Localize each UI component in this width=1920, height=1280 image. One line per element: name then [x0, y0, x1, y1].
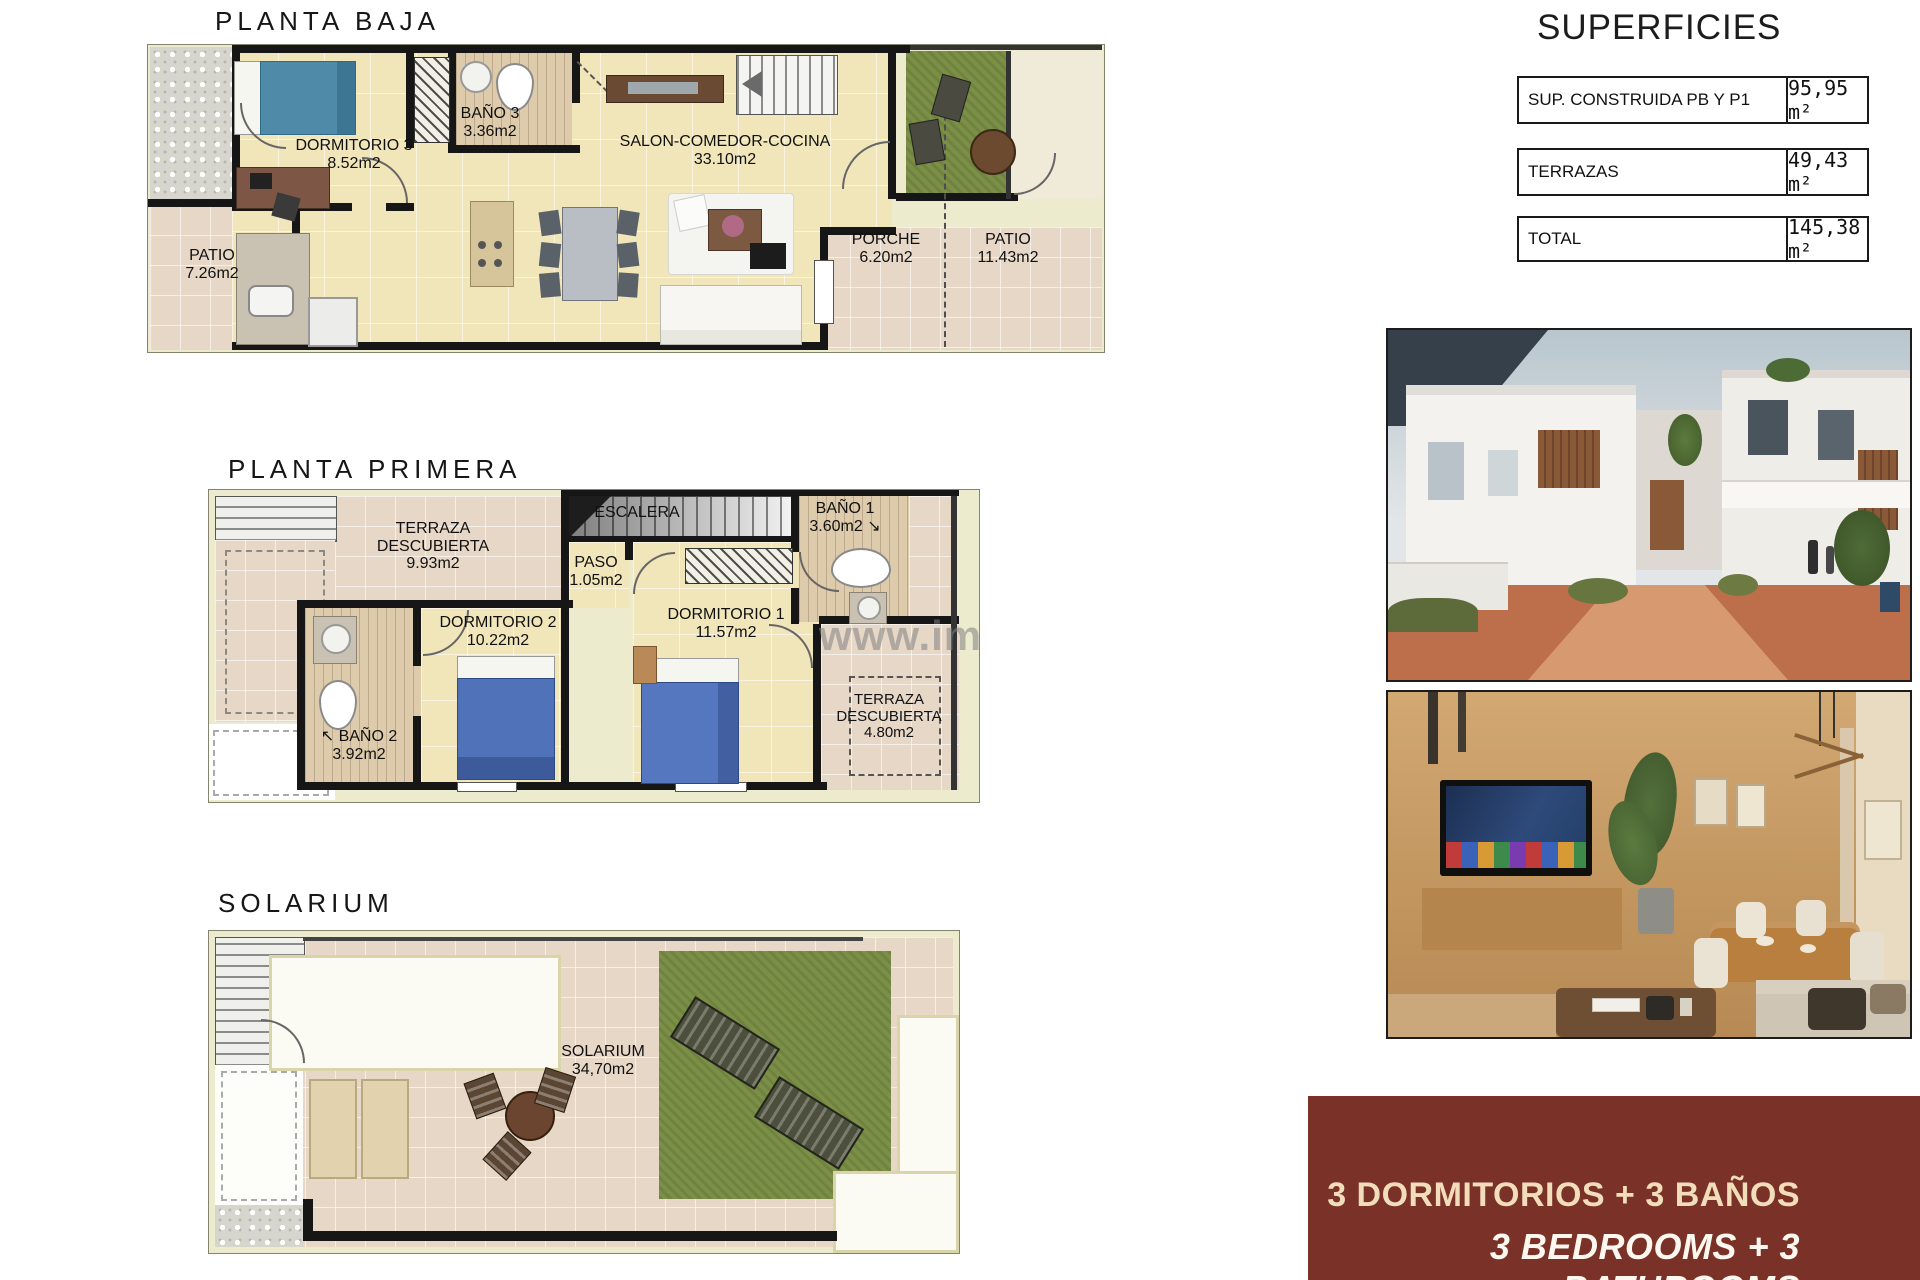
lounger-mat-icon — [361, 1079, 409, 1179]
garden-table-icon — [970, 129, 1016, 175]
burner-icon — [494, 259, 502, 267]
room-name: DORMITORIO 3 — [295, 137, 412, 154]
window — [1818, 410, 1854, 460]
candle — [1680, 998, 1692, 1016]
solarium-plan: SOLARIUM 34,70m2 — [208, 930, 960, 1254]
pouf-icon — [673, 194, 711, 232]
window — [1488, 450, 1518, 496]
room-area: 7.26m2 — [185, 265, 238, 282]
wall — [896, 193, 1018, 201]
chair-icon — [539, 272, 561, 298]
wall — [406, 53, 414, 148]
interior-render-photo — [1386, 690, 1912, 1039]
row-label: TOTAL — [1519, 218, 1788, 260]
wall — [569, 536, 795, 542]
room-area: 33.10m2 — [694, 151, 756, 168]
planta-primera-plan: TERRAZA DESCUBIERTA 9.93m2 ESCALERA PASO… — [208, 489, 980, 803]
room-label-patio-right: PATIO 11.43m2 — [960, 231, 1056, 266]
room-name: BAÑO 1 — [816, 500, 875, 517]
room-area: 3.92m2 — [332, 746, 385, 763]
window — [814, 260, 834, 324]
room-label-patio-left: PATIO 7.26m2 — [166, 247, 258, 282]
exterior-render-photo — [1386, 328, 1912, 682]
lounger-mat-icon — [309, 1079, 357, 1179]
wall — [297, 600, 305, 790]
bush — [1718, 574, 1758, 596]
bowl — [1800, 944, 1816, 953]
room-area: 3.36m2 — [463, 123, 516, 140]
chair-icon — [617, 242, 640, 268]
vase — [1646, 996, 1674, 1020]
coffee-table — [1556, 988, 1716, 1037]
boundary-dashed-line — [944, 95, 946, 347]
room-label-escalera: ESCALERA — [587, 504, 687, 522]
direction-arrow-icon: ↘ — [867, 518, 880, 535]
void-dashed-outline — [221, 1071, 297, 1201]
room-area: 8.52m2 — [327, 155, 380, 172]
sideboard — [1422, 888, 1622, 950]
room-area: 11.43m2 — [977, 249, 1038, 266]
wall — [303, 1199, 313, 1241]
banner-line1: 3 DORMITORIOS + 3 BAÑOS — [1308, 1176, 1800, 1215]
room-name: BAÑO 3 — [461, 105, 520, 122]
room-label-terraza2: TERRAZA DESCUBIERTA 4.80m2 — [833, 692, 945, 742]
room-label-bano1: BAÑO 1 3.60m2 ↘ — [797, 500, 893, 535]
dining-chair — [1796, 900, 1826, 936]
planta-baja-title: PLANTA BAJA — [215, 6, 440, 37]
direction-arrow-icon: ↖ — [321, 728, 334, 745]
wall — [448, 145, 580, 153]
room-label-porche: PORCHE 6.20m2 — [844, 231, 928, 266]
bed-icon — [641, 682, 739, 784]
sink-icon — [321, 624, 351, 654]
room-area: 1.05m2 — [569, 572, 622, 589]
room-name: TERRAZA DESCUBIERTA — [377, 520, 489, 555]
wall — [297, 600, 573, 608]
bed-icon — [457, 678, 555, 780]
room-label-terraza1: TERRAZA DESCUBIERTA 9.93m2 — [367, 520, 499, 573]
floor — [1388, 994, 1556, 1037]
burner-icon — [478, 259, 486, 267]
brochure-page: PLANTA BAJA PLANTA PRIMERA SOLARIUM — [0, 0, 1920, 1280]
wall — [303, 937, 863, 941]
room-name: PASO — [574, 554, 617, 571]
plaza-sign — [1880, 582, 1900, 612]
throw-blanket — [1808, 988, 1866, 1030]
planta-baja-plan: DORMITORIO 3 8.52m2 BAÑO 3 3.36m2 SALON-… — [147, 44, 1105, 353]
stairs-icon — [215, 496, 337, 542]
bowl — [1756, 936, 1774, 946]
entry-stone-area — [150, 47, 232, 205]
wall — [413, 716, 421, 786]
room-label-bano3: BAÑO 3 3.36m2 — [444, 105, 536, 140]
flowers-icon — [722, 215, 744, 237]
wall — [910, 45, 1102, 50]
sink-icon — [460, 61, 492, 93]
nightstand-icon — [633, 646, 657, 684]
bush — [1388, 598, 1478, 632]
grass-area — [659, 951, 891, 1199]
bush — [1568, 578, 1628, 604]
window — [1428, 442, 1464, 500]
chair-icon — [539, 242, 561, 268]
room-label-dormitorio2: DORMITORIO 2 10.22m2 — [431, 614, 565, 649]
chair-icon — [538, 210, 561, 237]
superficies-row: TOTAL 145,38 m² — [1517, 216, 1869, 262]
pendant-cord — [1819, 692, 1821, 746]
wall — [232, 45, 910, 53]
window — [1748, 400, 1788, 455]
row-label: SUP. CONSTRUIDA PB Y P1 — [1519, 78, 1788, 122]
tree — [1834, 510, 1890, 586]
side-terrace-strip — [909, 496, 957, 622]
row-value: 49,43 m² — [1788, 150, 1867, 194]
rooftop-plant — [1766, 358, 1810, 382]
chair-icon — [616, 210, 640, 237]
banner: 3 DORMITORIOS + 3 BAÑOS 3 BEDROOMS + 3 B… — [1308, 1096, 1920, 1280]
dark-cushion-icon — [750, 243, 786, 269]
room-label-dormitorio3: DORMITORIO 3 8.52m2 — [288, 137, 420, 172]
wall — [1006, 51, 1011, 199]
ceiling-beam — [1458, 692, 1466, 752]
person — [1826, 546, 1834, 574]
toilet-icon — [831, 548, 891, 588]
row-value: 95,95 m² — [1788, 78, 1867, 122]
room-label-salon: SALON-COMEDOR-COCINA 33.10m2 — [603, 133, 847, 168]
wood-door — [1650, 480, 1684, 550]
superficies-row: SUP. CONSTRUIDA PB Y P1 95,95 m² — [1517, 76, 1869, 124]
wood-slat-balcony — [1538, 430, 1600, 488]
room-label-bano2: ↖ BAÑO 2 3.92m2 — [309, 728, 409, 763]
solarium-title: SOLARIUM — [218, 888, 394, 919]
balcony-rail — [1722, 480, 1910, 508]
plant — [1668, 414, 1702, 466]
room-area: 3.60m2 — [809, 518, 862, 535]
room-name: PATIO — [985, 231, 1031, 248]
superficies-row: TERRAZAS 49,43 m² — [1517, 148, 1869, 196]
room-name: SALON-COMEDOR-COCINA — [620, 133, 831, 150]
watermark: www.imm — [819, 612, 980, 660]
wall-frame — [1694, 778, 1728, 826]
person — [1808, 540, 1818, 574]
tv-screen — [1446, 786, 1586, 842]
pendant-cord — [1833, 692, 1835, 738]
room-name: DORMITORIO 1 — [667, 606, 784, 623]
adjacent-roof — [833, 1171, 959, 1253]
plant-pot — [1638, 888, 1674, 934]
chair-icon — [617, 272, 639, 297]
cushion — [1870, 984, 1906, 1014]
room-label-dormitorio1: DORMITORIO 1 11.57m2 — [659, 606, 793, 641]
dining-chair — [1850, 932, 1884, 984]
planta-primera-title: PLANTA PRIMERA — [228, 454, 521, 485]
stone-strip — [215, 1205, 303, 1247]
room-area: 9.93m2 — [406, 555, 459, 572]
dining-table-icon — [562, 207, 618, 301]
pillow-icon — [457, 656, 555, 680]
row-label: TERRAZAS — [1519, 150, 1788, 194]
wall — [561, 490, 959, 496]
room-area: 11.57m2 — [695, 624, 756, 641]
dining-chair — [1736, 902, 1766, 938]
appliance-icon — [308, 297, 358, 347]
room-name: TERRAZA DESCUBIERTA — [836, 691, 941, 725]
wall — [386, 203, 414, 211]
wall-frame — [1864, 800, 1902, 860]
laptop-icon — [250, 173, 272, 189]
row-value: 145,38 m² — [1788, 218, 1867, 260]
room-name: PATIO — [189, 247, 235, 264]
room-area: 34,70m2 — [572, 1061, 634, 1078]
dining-table — [1710, 922, 1860, 982]
room-area: 4.80m2 — [864, 724, 914, 741]
room-name: BAÑO 2 — [339, 728, 398, 745]
banner-line2: 3 BEDROOMS + 3 BATHROOMS — [1308, 1226, 1800, 1280]
room-name: DORMITORIO 2 — [439, 614, 556, 631]
room-area: 6.20m2 — [859, 249, 912, 266]
kitchen-island-icon — [470, 201, 514, 287]
burner-icon — [494, 241, 502, 249]
room-label-solarium: SOLARIUM 34,70m2 — [551, 1043, 655, 1078]
wall-frame — [1736, 784, 1766, 828]
stair-bulkhead-roof — [269, 955, 561, 1071]
books — [1592, 998, 1640, 1012]
room-name: PORCHE — [852, 231, 920, 248]
sofa-icon — [660, 285, 802, 345]
wall — [413, 608, 421, 666]
room-name: SOLARIUM — [561, 1043, 645, 1060]
wall — [303, 1231, 837, 1241]
tv-app-row — [1446, 842, 1586, 868]
dining-chair — [1694, 938, 1728, 988]
room-name: ESCALERA — [594, 504, 679, 521]
window — [457, 782, 517, 792]
tv-icon — [628, 82, 698, 94]
wall — [572, 53, 580, 103]
stairs-arrow-icon — [742, 71, 762, 97]
burner-icon — [478, 241, 486, 249]
wardrobe-icon — [685, 548, 793, 584]
ceiling-beam — [1428, 692, 1438, 764]
kitchen-sink-icon — [248, 285, 294, 317]
room-area: 10.22m2 — [467, 632, 529, 649]
room-label-paso: PASO 1.05m2 — [563, 554, 629, 589]
superficies-title: SUPERFICIES — [1537, 8, 1781, 48]
